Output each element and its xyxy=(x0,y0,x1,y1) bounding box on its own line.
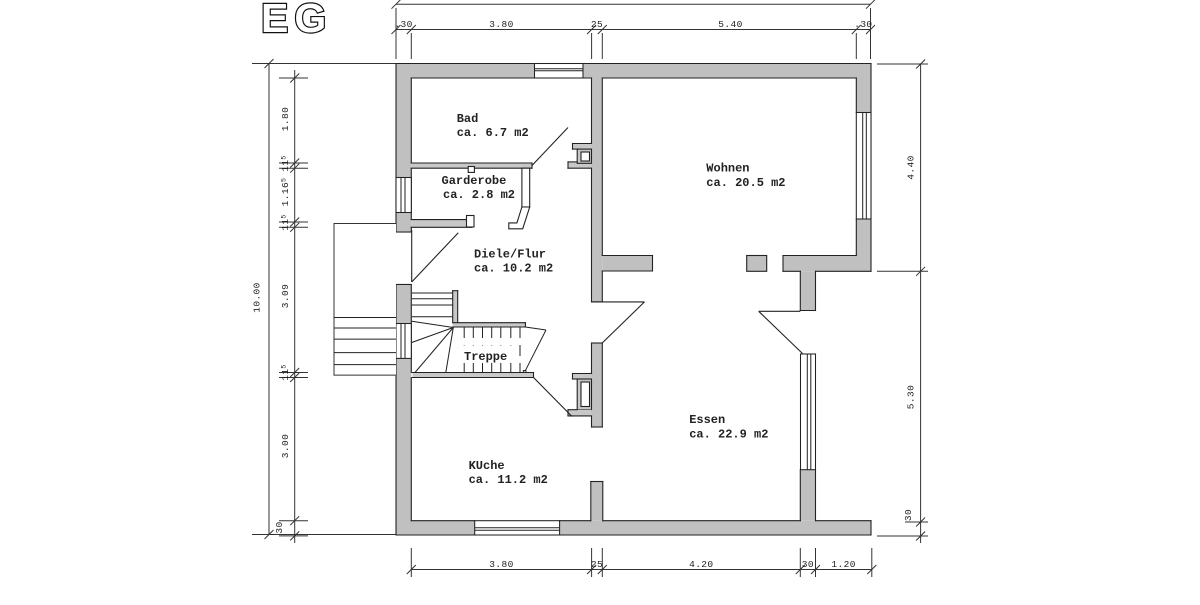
svg-text:Treppe: Treppe xyxy=(464,350,507,364)
svg-text:EG: EG xyxy=(261,0,332,41)
svg-text:ca. 11.2 m2: ca. 11.2 m2 xyxy=(469,473,548,487)
svg-text:30: 30 xyxy=(802,559,814,570)
svg-text:ca. 10.2 m2: ca. 10.2 m2 xyxy=(474,262,553,276)
svg-text:ca. 2.8 m2: ca. 2.8 m2 xyxy=(443,188,515,202)
svg-text:ca. 20.5 m2: ca. 20.5 m2 xyxy=(706,176,785,190)
svg-text:30: 30 xyxy=(903,509,914,521)
svg-text:.30: .30 xyxy=(854,19,872,30)
svg-text:25: 25 xyxy=(591,559,603,570)
svg-text:5.30: 5.30 xyxy=(906,385,917,409)
svg-text:10.00: 10.00 xyxy=(252,282,263,313)
svg-text:Essen: Essen xyxy=(689,413,725,427)
svg-text:4.40: 4.40 xyxy=(906,155,917,179)
svg-text:ca. 22.9 m2: ca. 22.9 m2 xyxy=(689,427,768,441)
svg-text:Wohnen: Wohnen xyxy=(706,161,749,175)
svg-text:Bad: Bad xyxy=(457,112,479,126)
svg-text:KUche: KUche xyxy=(469,459,505,473)
svg-text:Diele/Flur: Diele/Flur xyxy=(474,248,546,262)
svg-text:.30: .30 xyxy=(394,19,412,30)
svg-text:ca. 6.7 m2: ca. 6.7 m2 xyxy=(457,126,529,140)
svg-text:3.80: 3.80 xyxy=(489,19,513,30)
svg-text:5.40: 5.40 xyxy=(718,19,742,30)
svg-text:1.20: 1.20 xyxy=(831,559,855,570)
svg-text:3.09: 3.09 xyxy=(280,284,291,308)
svg-text:3.80: 3.80 xyxy=(489,559,513,570)
svg-text:4.20: 4.20 xyxy=(689,559,713,570)
svg-text:1.80: 1.80 xyxy=(280,107,291,131)
svg-text:25: 25 xyxy=(591,19,603,30)
svg-text:30: 30 xyxy=(274,521,285,533)
svg-text:Garderobe: Garderobe xyxy=(442,174,507,188)
svg-text:3.00: 3.00 xyxy=(280,434,291,458)
